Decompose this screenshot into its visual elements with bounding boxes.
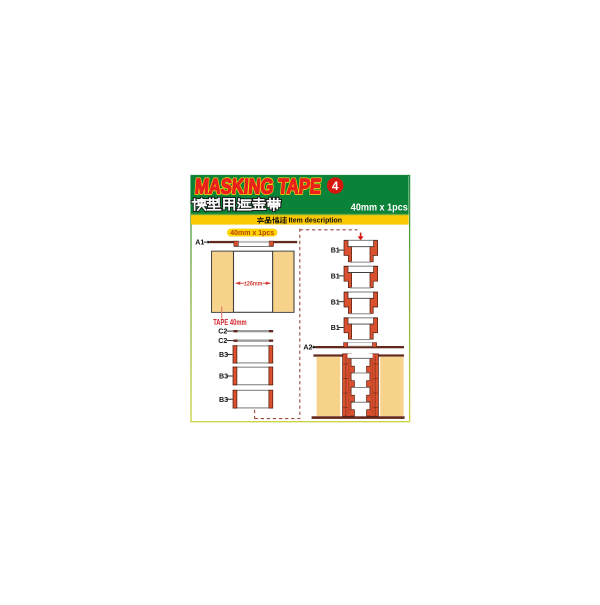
svg-text:TAPE 40mm: TAPE 40mm <box>213 317 247 327</box>
svg-text:B1: B1 <box>331 298 340 306</box>
svg-text:B3: B3 <box>219 351 228 359</box>
svg-text:40mm x 1pcs: 40mm x 1pcs <box>351 202 408 213</box>
svg-text:A1: A1 <box>195 238 204 246</box>
svg-text:B3: B3 <box>219 373 228 381</box>
svg-text:B1: B1 <box>331 247 340 255</box>
svg-text:C2: C2 <box>218 327 227 335</box>
svg-text:B3: B3 <box>219 396 228 404</box>
svg-text:B1: B1 <box>331 273 340 281</box>
svg-text:C2: C2 <box>218 337 227 345</box>
svg-text:MASKING TAPE: MASKING TAPE <box>194 176 322 199</box>
svg-text:Item description: Item description <box>289 216 343 225</box>
svg-text:±26mm: ±26mm <box>244 280 263 287</box>
svg-text:A2: A2 <box>303 344 312 352</box>
svg-text:40mm x 1pcs: 40mm x 1pcs <box>230 228 274 237</box>
svg-text:B1: B1 <box>331 324 340 332</box>
svg-text:4: 4 <box>332 179 339 193</box>
